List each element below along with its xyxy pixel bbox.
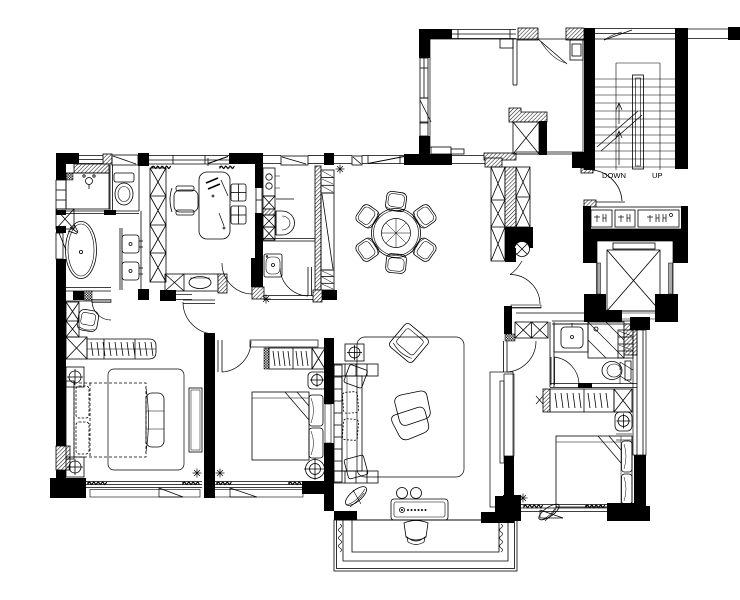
svg-text:DOWN: DOWN <box>602 171 626 180</box>
svg-text:UP: UP <box>652 171 663 180</box>
